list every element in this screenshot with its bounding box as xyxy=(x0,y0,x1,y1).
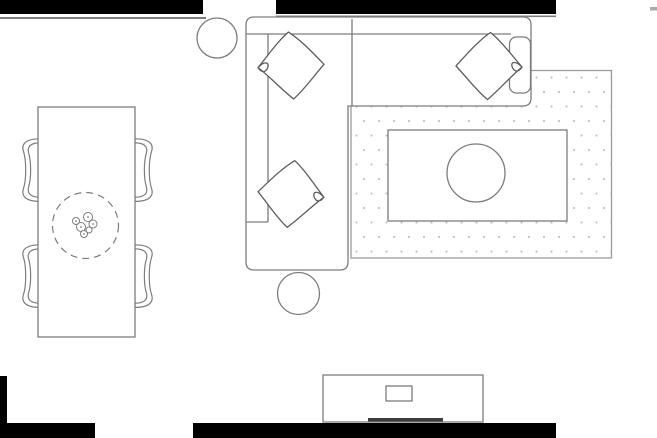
flower-center xyxy=(80,226,82,228)
dining-chair-top-right xyxy=(135,139,152,202)
dining-chair-bottom-right xyxy=(135,245,152,308)
round-side-table xyxy=(197,18,237,58)
wall-top-left xyxy=(0,0,203,14)
coffee-table xyxy=(388,130,567,221)
wall-line-top-left xyxy=(0,17,206,19)
dining-set xyxy=(23,107,152,337)
flower-center xyxy=(87,216,89,218)
flower-center xyxy=(92,223,94,225)
dining-table xyxy=(38,107,135,337)
flower-center xyxy=(83,233,85,235)
tv-stand xyxy=(323,375,483,422)
wall-bottom-center xyxy=(193,423,556,438)
wall-top-right xyxy=(276,0,556,14)
flower-center xyxy=(75,220,77,222)
tv-stand-top xyxy=(323,375,483,422)
wall-bottom-left-horizontal xyxy=(0,423,95,438)
soundbar xyxy=(368,418,443,422)
ottoman xyxy=(278,273,320,315)
wall-tick-top-right-corner xyxy=(650,7,657,11)
floor-plan-canvas xyxy=(0,0,657,438)
